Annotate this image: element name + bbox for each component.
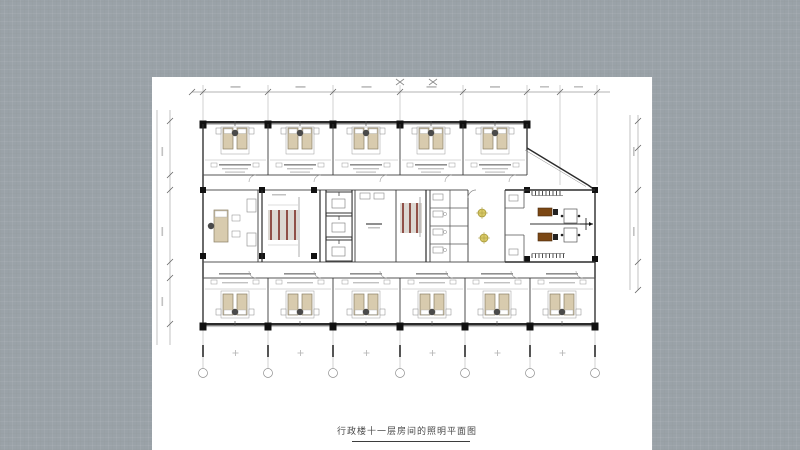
drawing-sheet[interactable]: 行政楼十一层房间的照明平面图 xyxy=(152,77,652,450)
viewer-canvas: 行政楼十一层房间的照明平面图 xyxy=(0,0,800,450)
bottom-rooms xyxy=(203,271,595,323)
building-walls xyxy=(200,121,599,331)
core-band xyxy=(208,190,490,262)
office-wing xyxy=(505,190,595,262)
plan-title: 行政楼十一层房间的照明平面图 xyxy=(312,426,502,437)
floor-plan-svg xyxy=(152,77,652,450)
top-rooms xyxy=(203,124,527,182)
title-underline xyxy=(352,441,470,442)
